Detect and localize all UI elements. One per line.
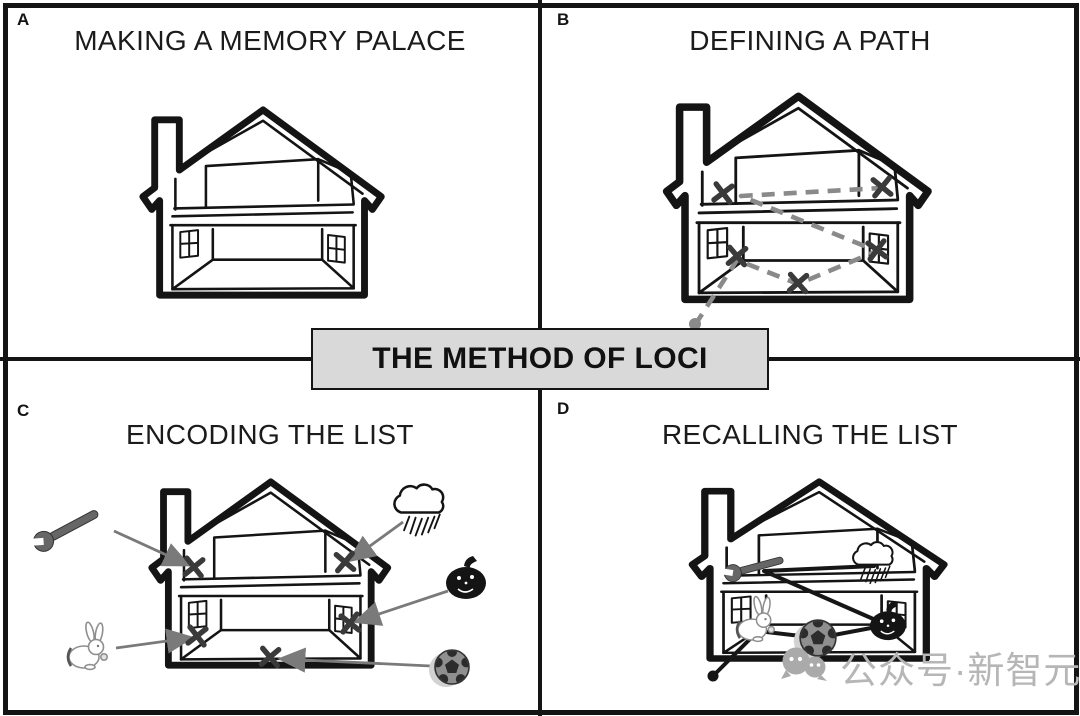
path-start-dot [708, 671, 719, 682]
rabbit-icon [68, 621, 107, 669]
panel-b-defining-a-path: B DEFINING A PATH [540, 0, 1080, 359]
banner-title: THE METHOD OF LOCI [372, 342, 708, 376]
panel-c-encoding-the-list: C ENCODING THE LIST [0, 359, 540, 716]
panel-label-c: C [17, 401, 29, 421]
arrow-cloud-to-locus [352, 522, 403, 559]
figure-method-of-loci: A MAKING A MEMORY PALACE B DEFINING A PA… [0, 0, 1080, 716]
soccer-ball-icon [429, 647, 471, 687]
pumpkin-icon [446, 556, 486, 599]
method-of-loci-banner: THE METHOD OF LOCI [311, 328, 769, 390]
panel-a-making-a-memory-palace: A MAKING A MEMORY PALACE [0, 0, 540, 359]
panel-label-d: D [557, 399, 569, 419]
wrench-icon [25, 504, 102, 558]
panel-title-d: RECALLING THE LIST [540, 419, 1080, 451]
panel-title-a: MAKING A MEMORY PALACE [0, 25, 540, 57]
encoding-drawing [0, 359, 540, 716]
storm-cloud-icon [394, 485, 443, 536]
panel-title-c: ENCODING THE LIST [0, 419, 540, 451]
panel-d-recalling-the-list: D RECALLING THE LIST [540, 359, 1080, 716]
panel-title-b: DEFINING A PATH [540, 25, 1080, 57]
recall-drawing [540, 359, 1080, 716]
